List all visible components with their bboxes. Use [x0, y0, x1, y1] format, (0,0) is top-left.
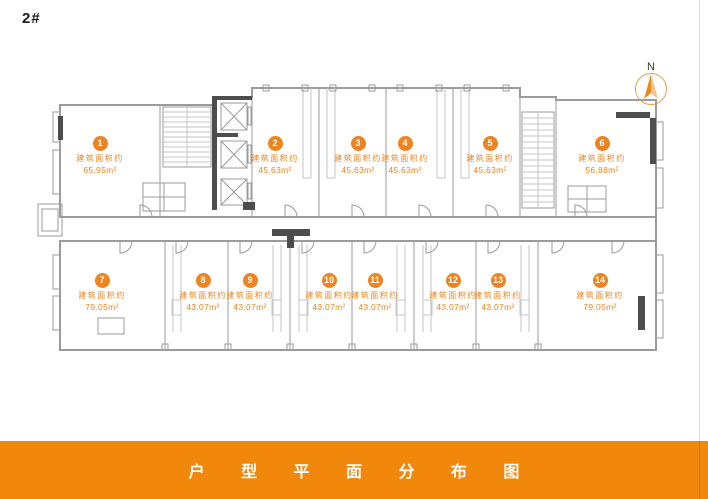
unit-badge-5: 5建筑面积约45.63m²: [442, 134, 538, 175]
unit-badge-2: 2建筑面积约45.63m²: [227, 134, 323, 175]
unit-badge-14: 14建筑面积约79.05m²: [552, 271, 648, 312]
unit-badge-6: 6建筑面积约56.88m²: [554, 134, 650, 175]
unit-area-label: 建筑面积约: [442, 155, 538, 163]
unit-area-label: 建筑面积约: [52, 155, 148, 163]
unit-area-value: 79.05m²: [552, 303, 648, 312]
unit-badge-4: 4建筑面积约45.63m²: [357, 134, 453, 175]
unit-area-value: 56.88m²: [554, 166, 650, 175]
unit-area-label: 建筑面积约: [357, 155, 453, 163]
unit-area-label: 建筑面积约: [227, 155, 323, 163]
unit-badge-7: 7建筑面积约79.05m²: [54, 271, 150, 312]
unit-area-label: 建筑面积约: [552, 292, 648, 300]
west-entrance: [38, 204, 62, 236]
unit-number: 1: [93, 136, 108, 151]
unit-number: 4: [398, 136, 413, 151]
unit-number: 7: [95, 273, 110, 288]
floor-plan: [0, 0, 708, 499]
unit-number: 11: [368, 273, 383, 288]
unit-number: 13: [491, 273, 506, 288]
unit-number: 6: [595, 136, 610, 151]
unit-number: 9: [243, 273, 258, 288]
unit-area-label: 建筑面积约: [450, 292, 546, 300]
unit-number: 2: [268, 136, 283, 151]
unit-area-label: 建筑面积约: [54, 292, 150, 300]
unit-area-value: 43.07m²: [450, 303, 546, 312]
compass-needle-dark: [644, 74, 651, 99]
unit-number: 14: [593, 273, 608, 288]
unit-badge-13: 13建筑面积约43.07m²: [450, 271, 546, 312]
unit-badge-1: 1建筑面积约65.95m²: [52, 134, 148, 175]
unit-number: 5: [483, 136, 498, 151]
unit-area-value: 45.63m²: [227, 166, 323, 175]
unit-area-value: 45.63m²: [442, 166, 538, 175]
footer-banner: 户 型 平 面 分 布 图: [0, 441, 708, 499]
north-label: N: [647, 61, 655, 73]
north-arrow: N: [628, 56, 676, 108]
unit-area-value: 79.05m²: [54, 303, 150, 312]
unit-area-label: 建筑面积约: [554, 155, 650, 163]
compass-needle-light: [651, 74, 658, 99]
unit-area-value: 45.63m²: [357, 166, 453, 175]
right-edge-line: [699, 0, 700, 499]
unit-area-value: 65.95m²: [52, 166, 148, 175]
footer-title: 户 型 平 面 分 布 图: [189, 458, 536, 482]
